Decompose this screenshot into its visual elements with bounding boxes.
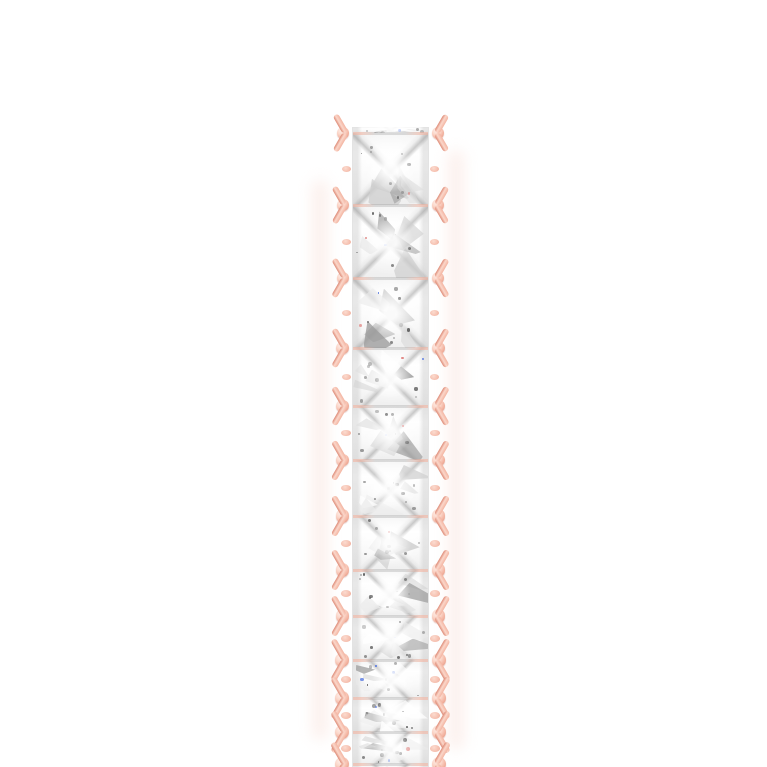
facet-shard (381, 537, 407, 557)
facet-shard (377, 679, 392, 693)
diamond-cell (353, 616, 428, 660)
prong-bar-up (331, 386, 347, 407)
facet-shard (363, 633, 390, 644)
facet-shard (391, 661, 407, 676)
facet-shard (364, 712, 400, 723)
sparkle-fleck (369, 597, 371, 599)
junction-line (353, 697, 428, 700)
sparkle-fleck (359, 324, 362, 327)
facet-shard (402, 622, 428, 641)
sparkle-fleck (388, 531, 390, 533)
sparkle-fleck (375, 527, 378, 530)
sparkle-fleck (384, 217, 388, 221)
sparkle-fleck (415, 396, 417, 398)
sparkle-fleck (393, 482, 395, 484)
sparkle-fleck (389, 182, 392, 185)
sparkle-fleck (414, 387, 417, 390)
prong-bar-down (332, 132, 347, 152)
sparkle-fleck (408, 247, 412, 251)
sparkle-fleck (393, 337, 395, 339)
facet-shard (378, 638, 404, 658)
facet-shard (355, 364, 369, 376)
facet-shard (401, 734, 428, 749)
prong-stub (342, 239, 351, 245)
facet-shard (399, 465, 428, 480)
sparkle-fleck (408, 192, 410, 194)
facet-shard (361, 736, 388, 743)
prong-bar-up (332, 328, 347, 349)
junction-line (353, 347, 428, 350)
junction-line (353, 615, 428, 618)
facet-shard (359, 743, 377, 749)
prong-stub (342, 166, 351, 172)
sparkle-fleck (401, 153, 403, 155)
diamond-cell (353, 278, 428, 348)
facet-shard (376, 542, 390, 569)
facet-shard (391, 643, 413, 660)
sparkle-fleck (418, 542, 420, 544)
prong-stub (430, 239, 439, 245)
junction-line (353, 277, 428, 280)
prong-bar-down (332, 347, 347, 368)
prong-stub (341, 635, 351, 642)
prong-bar-up (332, 258, 347, 279)
sparkle-fleck (363, 573, 365, 575)
sparkle-fleck (402, 711, 404, 713)
sparkle-fleck (356, 252, 358, 254)
sparkle-fleck (370, 151, 372, 153)
sparkle-fleck (360, 399, 363, 402)
facet-shard (359, 495, 378, 508)
sparkle-fleck (387, 688, 390, 691)
diamond-cell (353, 570, 428, 616)
sparkle-fleck (385, 550, 389, 554)
prong-rail-left (330, 127, 352, 767)
sparkle-fleck (366, 712, 368, 714)
sparkle-fleck (405, 441, 409, 445)
sparkle-fleck (368, 519, 371, 522)
sparkle-fleck (368, 362, 372, 366)
diamond-cell (353, 516, 428, 570)
sparkle-fleck (378, 703, 382, 707)
facet-shard (353, 380, 379, 392)
facet-shard (360, 498, 377, 514)
sparkle-fleck (381, 749, 383, 751)
prong-bar-down (331, 515, 347, 537)
sparkle-fleck (422, 631, 425, 634)
sparkle-fleck (394, 662, 397, 665)
facet-shard (357, 288, 390, 312)
sparkle-fleck (385, 678, 388, 681)
facet-shard (389, 598, 416, 613)
prong-stub (430, 540, 440, 547)
sparkle-fleck (404, 552, 407, 555)
facet-shard (385, 233, 421, 254)
product-photo (0, 0, 767, 767)
junction-line (353, 731, 428, 734)
facet-shard (401, 174, 424, 193)
prong-stub (430, 676, 440, 683)
facet-shard (368, 536, 403, 556)
sparkle-fleck (402, 425, 404, 427)
sparkle-fleck (406, 747, 410, 751)
prong-stub (341, 745, 351, 752)
facet-shard (356, 665, 375, 674)
prong-bar-down (331, 569, 347, 591)
prong-stub (341, 430, 351, 436)
sparkle-fleck (364, 376, 367, 379)
sparkle-fleck (395, 234, 397, 236)
sparkle-fleck (406, 654, 408, 656)
prong-bar-up (332, 185, 347, 205)
prong-stub (342, 310, 351, 316)
prong-bar-down (332, 277, 347, 298)
sparkle-fleck (370, 646, 373, 649)
prong-stub (430, 635, 440, 642)
facet-shard (386, 700, 428, 718)
sparkle-fleck (395, 483, 399, 487)
prong-stub (430, 374, 439, 380)
sparkle-fleck (412, 507, 416, 511)
prong-bar-down (330, 615, 347, 637)
facet-shard (390, 176, 412, 204)
ring-band-edge-view (330, 127, 451, 767)
sparkle-fleck (383, 713, 386, 716)
sparkle-fleck (398, 297, 400, 299)
sparkle-fleck (362, 756, 366, 760)
sparkle-fleck (386, 606, 388, 608)
prong-rail-right (429, 127, 451, 767)
sparkle-fleck (408, 593, 410, 595)
facet-shard (403, 129, 428, 131)
sparkle-fleck (369, 665, 373, 669)
junction-line (353, 659, 428, 662)
sparkle-fleck (360, 678, 363, 681)
junction-line (353, 204, 428, 207)
facet-shard (371, 168, 409, 198)
facet-shard (400, 481, 418, 494)
sparkle-fleck (361, 153, 363, 155)
facet-shard (394, 366, 414, 380)
sparkle-fleck (407, 163, 411, 167)
sparkle-fleck (379, 214, 382, 217)
sparkle-fleck (391, 264, 394, 267)
sparkle-fleck (390, 341, 393, 344)
facet-shard (377, 211, 395, 240)
diamond-cell (353, 698, 428, 732)
sparkle-fleck (374, 498, 376, 500)
sparkle-fleck (395, 751, 399, 755)
facet-shard (389, 129, 414, 131)
sparkle-fleck (395, 433, 397, 435)
sparkle-fleck (392, 721, 396, 725)
sparkle-fleck (367, 684, 369, 686)
prong-bar-down (331, 405, 347, 426)
facet-shard (398, 583, 428, 604)
sparkle-fleck (394, 637, 396, 639)
sparkle-fleck (403, 738, 407, 742)
sparkle-fleck (399, 752, 402, 755)
sparkle-fleck (396, 591, 398, 593)
junction-line (353, 763, 428, 766)
facet-shard (365, 370, 388, 389)
junction-line (353, 132, 428, 135)
facet-shard (364, 323, 395, 343)
facet-shard (356, 672, 371, 691)
sparkle-fleck (375, 378, 379, 382)
junction-line (353, 515, 428, 518)
sparkle-fleck (384, 244, 387, 247)
junction-line (353, 459, 428, 462)
prong-stub (341, 485, 351, 491)
diamond-cell (353, 660, 428, 698)
sparkle-fleck (380, 753, 384, 757)
sparkle-fleck (401, 357, 403, 359)
sparkle-fleck (375, 665, 377, 667)
facet-shard (383, 721, 414, 728)
sparkle-fleck (362, 625, 365, 628)
prong-stub (341, 590, 351, 597)
sparkle-fleck (367, 365, 370, 368)
facet-shard (363, 743, 393, 752)
facet-shard (356, 418, 384, 430)
facet-shard (397, 165, 419, 203)
diamond-cell (353, 732, 428, 764)
facet-shard (374, 548, 396, 559)
facet-shard (383, 431, 413, 446)
prong-stub (430, 712, 440, 719)
facet-shard (399, 639, 428, 651)
facet-shard (370, 431, 400, 457)
sparkle-fleck (405, 501, 407, 503)
junction-line (353, 569, 428, 572)
facet-shard (390, 531, 420, 555)
prong-bar-down (331, 459, 347, 481)
sparkle-fleck (364, 655, 367, 658)
facet-shard (387, 431, 422, 460)
sparkle-fleck (365, 237, 367, 239)
prong-stub (341, 540, 351, 547)
prong-bar-up (331, 439, 347, 461)
prong-stub (430, 430, 440, 436)
facet-shard (394, 248, 425, 278)
sparkle-fleck (399, 323, 403, 327)
sparkle-fleck (375, 706, 377, 708)
sparkle-fleck (363, 481, 365, 483)
facet-shard (401, 322, 417, 348)
diamond-cell (353, 133, 428, 205)
facet-shard (362, 494, 404, 516)
sparkle-fleck (385, 413, 388, 416)
prong-bar-up (331, 549, 347, 571)
sparkle-fleck (391, 413, 394, 416)
sparkle-fleck (408, 654, 412, 658)
prong-stub (430, 485, 440, 491)
sparkle-fleck (394, 287, 397, 290)
sparkle-fleck (399, 621, 401, 623)
prong-stub (342, 374, 351, 380)
facet-shard (367, 592, 405, 607)
facet-shard (381, 349, 407, 372)
facet-shard (368, 179, 401, 205)
sparkle-fleck (378, 292, 380, 294)
prong-bar-down (332, 204, 347, 224)
diamond-cell (353, 205, 428, 278)
sparkle-fleck (404, 578, 407, 581)
prong-stub (341, 676, 351, 683)
facet-shard (364, 321, 392, 348)
diamond-row (352, 127, 429, 767)
facet-shard (358, 710, 390, 728)
sparkle-fleck (401, 492, 404, 495)
sparkle-fleck (392, 671, 395, 674)
junction-line (353, 405, 428, 408)
facet-shard (379, 289, 415, 326)
sparkle-fleck (387, 487, 390, 490)
prong-bar-up (330, 595, 347, 617)
sparkle-fleck (417, 695, 419, 697)
sparkle-fleck (360, 449, 363, 452)
sparkle-fleck (372, 704, 376, 708)
sparkle-fleck (387, 545, 390, 548)
diamond-cell (353, 348, 428, 406)
facet-shard (359, 596, 380, 613)
prong-stub (430, 590, 440, 597)
sparkle-fleck (372, 212, 375, 215)
sparkle-fleck (369, 595, 372, 598)
diamond-cell (353, 406, 428, 460)
sparkle-fleck (397, 196, 400, 199)
sparkle-fleck (407, 328, 411, 332)
sparkle-fleck (375, 410, 378, 413)
prong-stub (341, 712, 351, 719)
facet-shard (388, 416, 403, 445)
facet-shard (397, 216, 424, 249)
sparkle-fleck (411, 727, 413, 729)
diamond-cell (353, 460, 428, 516)
facet-shard (360, 236, 378, 254)
prong-stub (430, 310, 439, 316)
sparkle-fleck (413, 484, 415, 486)
sparkle-fleck (370, 146, 372, 148)
sparkle-fleck (360, 574, 363, 577)
facet-shard (398, 574, 428, 590)
sparkle-fleck (422, 358, 425, 361)
sparkle-fleck (367, 321, 369, 323)
prong-stub (430, 166, 439, 172)
sparkle-fleck (364, 553, 366, 555)
soft-reflection-left (312, 180, 328, 740)
sparkle-fleck (359, 578, 361, 580)
sparkle-fleck (389, 550, 391, 552)
facet-shard (363, 674, 390, 681)
sparkle-fleck (416, 128, 420, 132)
sparkle-fleck (388, 759, 391, 762)
sparkle-fleck (401, 191, 404, 194)
sparkle-fleck (406, 726, 408, 728)
sparkle-fleck (358, 433, 360, 435)
sparkle-fleck (385, 434, 387, 436)
